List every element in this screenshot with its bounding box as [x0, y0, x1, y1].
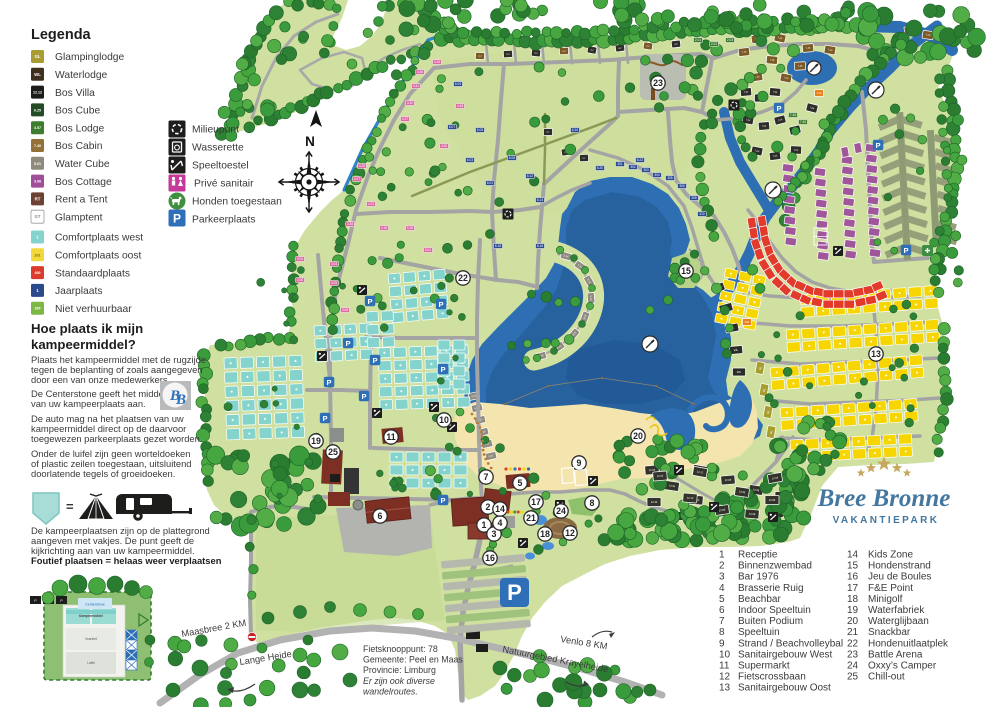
svg-text:15: 15 — [847, 561, 859, 572]
svg-text:Provincie: Limburg: Provincie: Limburg — [363, 665, 436, 675]
svg-text:6: 6 — [378, 511, 383, 521]
svg-text:301: 301 — [617, 162, 623, 166]
svg-text:P: P — [322, 414, 327, 423]
svg-text:11: 11 — [719, 661, 730, 672]
svg-text:22: 22 — [458, 273, 468, 283]
svg-text:Kampeermiddel: Kampeermiddel — [79, 614, 103, 618]
svg-text:Indoor Speeltuin: Indoor Speeltuin — [738, 605, 811, 616]
svg-text:Kids Zone: Kids Zone — [868, 550, 913, 561]
svg-text:Foutief plaatsen = helaas weer: Foutief plaatsen = helaas weer verplaats… — [31, 555, 222, 566]
svg-text:305: 305 — [667, 176, 673, 180]
svg-text:Water Cube: Water Cube — [55, 159, 110, 170]
svg-text:P: P — [361, 392, 366, 401]
svg-text:Rent a Tent: Rent a Tent — [55, 195, 108, 206]
svg-text:6.09: 6.09 — [455, 82, 461, 86]
svg-text:6.07: 6.07 — [449, 125, 455, 129]
svg-text:VAKANTIEPARK: VAKANTIEPARK — [833, 515, 940, 526]
svg-text:P: P — [367, 297, 372, 306]
svg-text:Bos Cube: Bos Cube — [55, 106, 100, 117]
svg-text:Strand / Beachvolleybal: Strand / Beachvolleybal — [738, 638, 843, 649]
svg-text:16: 16 — [847, 572, 859, 583]
svg-text:20: 20 — [847, 616, 859, 627]
svg-text:Legenda: Legenda — [31, 27, 92, 43]
svg-text:Standaardplaats: Standaardplaats — [55, 268, 130, 279]
svg-text:12: 12 — [565, 528, 575, 538]
svg-text:Snackbar: Snackbar — [868, 627, 911, 638]
svg-text:14: 14 — [495, 504, 505, 514]
svg-text:GT: GT — [34, 214, 40, 219]
svg-text:Sanitairgebouw West: Sanitairgebouw West — [738, 649, 833, 660]
svg-text:1: 1 — [719, 550, 725, 561]
svg-text:WL: WL — [734, 348, 739, 352]
svg-text:F&E Point: F&E Point — [868, 583, 913, 594]
svg-text:21: 21 — [847, 627, 859, 638]
svg-text:Bos Cottage: Bos Cottage — [55, 177, 112, 188]
svg-text:6.05: 6.05 — [477, 128, 483, 132]
svg-text:12.06: 12.06 — [769, 498, 776, 502]
svg-text:7.45: 7.45 — [790, 113, 796, 117]
svg-text:Wasserette: Wasserette — [192, 143, 244, 154]
svg-text:Parkeerplaats: Parkeerplaats — [192, 215, 256, 226]
svg-text:8: 8 — [590, 498, 595, 508]
svg-text:4.45: 4.45 — [434, 60, 440, 64]
svg-text:Luifel: Luifel — [87, 661, 95, 665]
svg-text:Centerstone: Centerstone — [85, 603, 105, 607]
svg-text:Bree Bronne: Bree Bronne — [817, 485, 951, 512]
svg-text:304: 304 — [654, 173, 660, 177]
svg-text:7.40: 7.40 — [800, 120, 806, 124]
svg-text:2.01: 2.01 — [695, 38, 701, 42]
svg-text:5.01: 5.01 — [34, 162, 41, 166]
svg-text:Glamptent: Glamptent — [55, 212, 103, 223]
svg-text:P.24: P.24 — [745, 321, 750, 324]
svg-text:12.10: 12.10 — [651, 500, 658, 504]
svg-text:Brasserie Ruig: Brasserie Ruig — [738, 583, 804, 594]
svg-text:Bar 1976: Bar 1976 — [738, 572, 779, 583]
svg-text:P: P — [173, 212, 181, 226]
svg-text:P: P — [875, 141, 880, 150]
svg-text:10: 10 — [719, 649, 731, 660]
svg-text:Sanitairgebouw Oost: Sanitairgebouw Oost — [738, 683, 831, 694]
svg-text:P: P — [903, 246, 908, 255]
svg-text:4.30: 4.30 — [441, 144, 447, 148]
svg-text:6.22: 6.22 — [637, 158, 643, 162]
svg-text:14: 14 — [847, 550, 859, 561]
svg-text:Fietscrossbaan: Fietscrossbaan — [738, 672, 806, 683]
svg-text:16: 16 — [485, 553, 495, 563]
svg-text:P: P — [440, 365, 445, 374]
svg-text:6.10: 6.10 — [572, 128, 578, 132]
svg-text:4.40: 4.40 — [407, 101, 413, 105]
svg-text:4.37: 4.37 — [402, 117, 408, 121]
svg-text:22: 22 — [847, 638, 859, 649]
svg-text:8: 8 — [719, 627, 725, 638]
svg-text:1: 1 — [482, 520, 487, 530]
svg-text:Waterfabriek: Waterfabriek — [868, 605, 925, 616]
svg-text:4.27: 4.27 — [354, 177, 360, 181]
svg-text:3.08: 3.08 — [34, 180, 41, 184]
svg-text:308: 308 — [691, 196, 697, 200]
svg-text:Glampinglodge: Glampinglodge — [55, 52, 125, 63]
svg-text:Privé sanitair: Privé sanitair — [194, 179, 254, 190]
svg-text:6.03: 6.03 — [467, 158, 473, 162]
svg-text:Jeu de Boules: Jeu de Boules — [868, 572, 931, 583]
svg-text:4.41: 4.41 — [413, 84, 419, 88]
svg-text:6.18: 6.18 — [495, 244, 501, 248]
svg-text:wandelroutes.: wandelroutes. — [363, 686, 418, 696]
svg-text:Bos Cabin: Bos Cabin — [55, 141, 103, 152]
svg-text:6.01: 6.01 — [487, 181, 493, 185]
svg-text:WL: WL — [34, 72, 41, 77]
svg-text:Hoe plaats ik mijn: Hoe plaats ik mijn — [31, 321, 143, 336]
svg-text:Er zijn ook diverse: Er zijn ook diverse — [363, 676, 435, 686]
svg-text:21: 21 — [526, 513, 536, 523]
svg-text:Milieupunt: Milieupunt — [192, 125, 239, 136]
svg-text:306: 306 — [679, 184, 685, 188]
svg-text:5.10: 5.10 — [589, 295, 593, 301]
svg-text:3.38: 3.38 — [347, 222, 353, 226]
svg-text:Niet verhuurbaar: Niet verhuurbaar — [55, 304, 132, 315]
svg-text:19: 19 — [847, 605, 859, 616]
svg-text:25: 25 — [328, 447, 338, 457]
svg-text:13: 13 — [871, 349, 881, 359]
svg-text:Comfortplaats oost: Comfortplaats oost — [55, 251, 142, 262]
svg-text:P: P — [507, 580, 522, 605]
svg-text:3.03: 3.03 — [331, 262, 337, 266]
svg-text:Voortent: Voortent — [85, 637, 97, 641]
svg-text:12.06: 12.06 — [725, 478, 732, 483]
svg-text:Jaarplaats: Jaarplaats — [55, 286, 103, 297]
svg-text:P: P — [776, 104, 781, 113]
svg-text:24: 24 — [556, 506, 566, 516]
svg-text:toegewezen parkeerplaats gezet: toegewezen parkeerplaats gezet worden. — [31, 433, 202, 444]
svg-text:2: 2 — [719, 561, 725, 572]
svg-text:Comfortplaats west: Comfortplaats west — [55, 233, 143, 244]
svg-text:5: 5 — [719, 594, 725, 605]
svg-text:7.40: 7.40 — [34, 144, 41, 148]
svg-text:18: 18 — [847, 594, 859, 605]
svg-text:15: 15 — [681, 266, 691, 276]
svg-text:12.10: 12.10 — [687, 496, 694, 501]
svg-text:25: 25 — [847, 672, 859, 683]
svg-text:6.16: 6.16 — [537, 244, 543, 248]
svg-text:23: 23 — [653, 78, 663, 88]
svg-text:4.46: 4.46 — [417, 70, 423, 74]
svg-text:4.18: 4.18 — [381, 226, 387, 230]
svg-text:3.08: 3.08 — [342, 308, 348, 312]
svg-text:6.14: 6.14 — [537, 198, 543, 202]
svg-text:7.40: 7.40 — [798, 65, 803, 68]
svg-text:P: P — [345, 339, 350, 348]
svg-text:WL: WL — [737, 370, 742, 374]
svg-text:4: 4 — [498, 518, 503, 528]
svg-text:Bos Lodge: Bos Lodge — [55, 123, 105, 134]
svg-text:Waterlodge: Waterlodge — [55, 70, 108, 81]
svg-text:3.06: 3.06 — [297, 278, 303, 282]
svg-text:GL: GL — [34, 54, 40, 59]
svg-text:P: P — [326, 378, 331, 387]
svg-text:7: 7 — [719, 616, 725, 627]
svg-text:18: 18 — [540, 529, 550, 539]
svg-text:2: 2 — [486, 502, 491, 512]
svg-text:Speeltuin: Speeltuin — [738, 627, 780, 638]
svg-text:3.04: 3.04 — [297, 257, 303, 261]
svg-text:302: 302 — [630, 165, 636, 169]
svg-text:Honden toegestaan: Honden toegestaan — [192, 197, 282, 208]
svg-text:P: P — [372, 356, 377, 365]
svg-text:Oxxy’s Camper: Oxxy’s Camper — [868, 661, 937, 672]
svg-text:4.23: 4.23 — [368, 202, 374, 206]
svg-text:12.02: 12.02 — [649, 468, 656, 473]
svg-text:4: 4 — [719, 583, 725, 594]
svg-text:12: 12 — [719, 672, 731, 683]
svg-text:2.03: 2.03 — [727, 38, 733, 42]
svg-text:Gemeente: Peel en Maas: Gemeente: Peel en Maas — [363, 655, 463, 665]
svg-text:Binnenzwembad: Binnenzwembad — [738, 561, 812, 572]
svg-text:P: P — [438, 300, 443, 309]
svg-text:3: 3 — [492, 529, 497, 539]
svg-text:6.20: 6.20 — [597, 166, 603, 170]
svg-text:10: 10 — [439, 415, 449, 425]
svg-text:6.12: 6.12 — [527, 174, 533, 178]
svg-text:Chill-out: Chill-out — [868, 672, 905, 683]
svg-text:12.08: 12.08 — [749, 512, 756, 517]
svg-text:9: 9 — [719, 638, 725, 649]
svg-text:24: 24 — [847, 661, 859, 672]
svg-text:Fietsknooppunt: 78: Fietsknooppunt: 78 — [363, 644, 438, 654]
svg-text:310: 310 — [699, 212, 705, 216]
svg-text:13: 13 — [719, 683, 731, 694]
svg-text:6.08: 6.08 — [509, 156, 515, 160]
svg-text:P: P — [440, 496, 445, 505]
svg-text:3.05: 3.05 — [331, 281, 337, 285]
svg-text:Bos Villa: Bos Villa — [55, 88, 95, 99]
svg-text:11: 11 — [386, 432, 395, 442]
svg-text:3.57: 3.57 — [34, 126, 41, 130]
svg-text:Waterglijbaan: Waterglijbaan — [868, 616, 929, 627]
svg-text:Receptie: Receptie — [738, 550, 778, 561]
svg-text:7: 7 — [484, 472, 489, 482]
svg-text:door een van onze medewerkers.: door een van onze medewerkers. — [31, 374, 170, 385]
svg-text:Buiten Podium: Buiten Podium — [738, 616, 803, 627]
svg-text:N: N — [305, 134, 315, 149]
svg-text:5.01: 5.01 — [425, 248, 431, 252]
svg-text:doorlatende tegels of groeidoe: doorlatende tegels of groeidoeken. — [31, 468, 175, 479]
svg-text:6: 6 — [719, 605, 725, 616]
svg-text:19: 19 — [311, 436, 321, 446]
svg-text:B: B — [175, 392, 186, 408]
svg-text:303: 303 — [643, 168, 649, 172]
svg-text:van uw kampeerplaats aan.: van uw kampeerplaats aan. — [31, 398, 146, 409]
svg-text:Beachbar: Beachbar — [738, 594, 781, 605]
svg-text:20: 20 — [633, 431, 643, 441]
svg-text:Battle Arena: Battle Arena — [868, 649, 923, 660]
svg-text:4.48: 4.48 — [457, 104, 463, 108]
svg-text:Supermarkt: Supermarkt — [738, 661, 790, 672]
svg-text:200: 200 — [35, 307, 41, 311]
svg-text:7.04: 7.04 — [794, 149, 799, 152]
svg-text:Minigolf: Minigolf — [868, 594, 903, 605]
svg-text:9: 9 — [577, 458, 582, 468]
svg-text:Speeltoestel: Speeltoestel — [192, 161, 249, 172]
svg-text:5: 5 — [518, 478, 523, 488]
svg-text:7.12: 7.12 — [817, 92, 822, 95]
svg-text:4.28: 4.28 — [359, 164, 365, 168]
svg-text:Hondenuitlaatplek: Hondenuitlaatplek — [868, 638, 949, 649]
svg-text:17: 17 — [531, 497, 541, 507]
svg-text:RT: RT — [35, 196, 41, 201]
svg-text:5.28: 5.28 — [407, 226, 413, 230]
svg-text:23: 23 — [847, 649, 859, 660]
svg-text:kampeermiddel?: kampeermiddel? — [31, 337, 136, 352]
svg-text:12.02: 12.02 — [657, 474, 664, 479]
svg-text:6.25: 6.25 — [34, 108, 41, 112]
svg-text:2.02: 2.02 — [711, 42, 717, 46]
svg-text:=: = — [66, 499, 74, 514]
svg-text:17: 17 — [847, 583, 859, 594]
svg-text:400: 400 — [35, 271, 41, 275]
svg-text:3: 3 — [719, 572, 725, 583]
svg-text:201: 201 — [35, 253, 41, 257]
svg-text:Hondenstrand: Hondenstrand — [868, 561, 931, 572]
svg-text:12.12: 12.12 — [33, 91, 42, 95]
